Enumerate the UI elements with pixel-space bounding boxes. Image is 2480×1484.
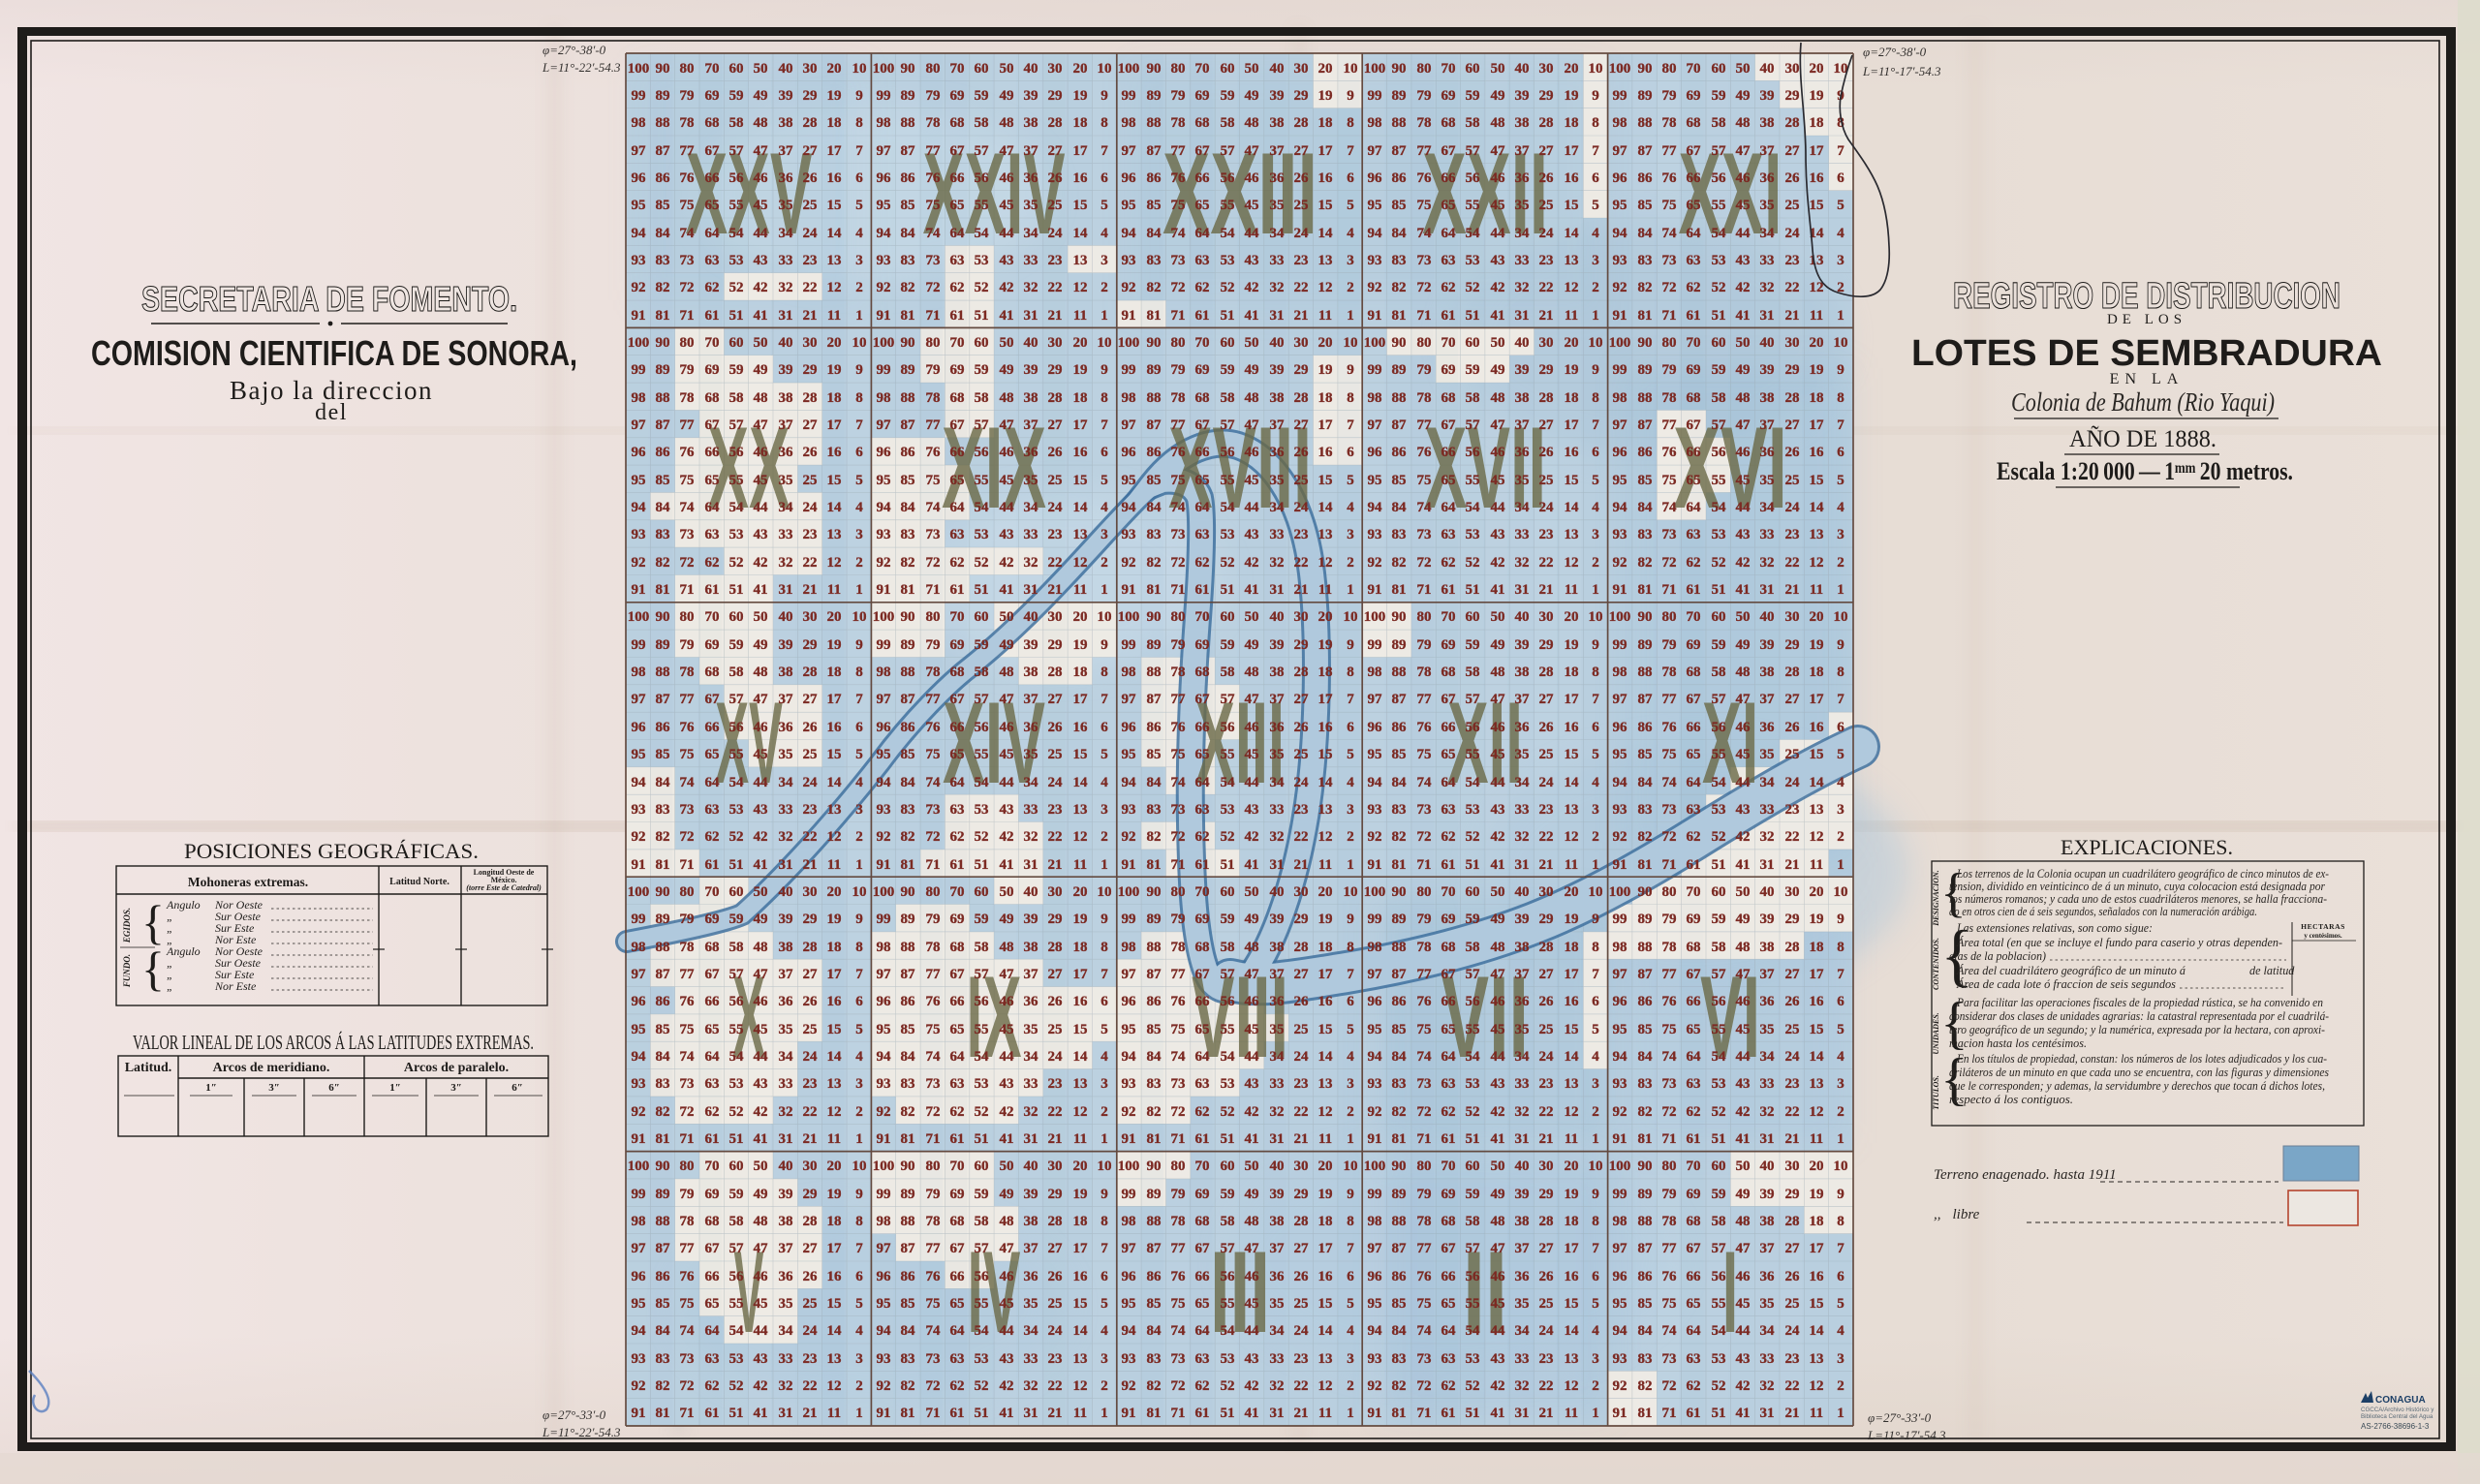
svg-text:86: 86	[1638, 170, 1654, 186]
svg-text:74: 74	[680, 1049, 696, 1065]
svg-text:Escala 1:20 000 — 1ᵐᵐ 20 metro: Escala 1:20 000 — 1ᵐᵐ 20 metros.	[1997, 457, 2293, 485]
svg-text:52: 52	[1712, 1104, 1726, 1120]
svg-text:49: 49	[1245, 88, 1259, 104]
svg-text:100: 100	[628, 1159, 650, 1174]
svg-text:8: 8	[1837, 390, 1844, 406]
svg-text:84: 84	[1392, 226, 1408, 241]
svg-text:69: 69	[950, 1187, 965, 1202]
svg-text:63: 63	[1195, 1351, 1210, 1367]
svg-text:13: 13	[1073, 253, 1088, 268]
svg-text:14: 14	[1810, 1049, 1825, 1065]
svg-text:73: 73	[926, 1076, 941, 1092]
svg-text:3: 3	[1837, 1076, 1844, 1092]
svg-text:15: 15	[1318, 747, 1333, 762]
svg-text:64: 64	[705, 1049, 721, 1065]
svg-text:67: 67	[1195, 143, 1211, 159]
svg-text:EGIDOS.: EGIDOS.	[122, 908, 132, 943]
svg-text:L=11°-22′-54.3: L=11°-22′-54.3	[542, 60, 621, 75]
svg-text:22: 22	[1294, 1378, 1309, 1394]
svg-text:23: 23	[1294, 527, 1309, 542]
svg-text:61: 61	[950, 857, 965, 873]
svg-text:87: 87	[901, 692, 916, 707]
svg-text:62: 62	[1687, 829, 1701, 845]
svg-text:37: 37	[1024, 967, 1039, 982]
svg-text:77: 77	[1417, 417, 1433, 433]
svg-text:94: 94	[1613, 226, 1628, 241]
svg-text:9: 9	[855, 1187, 863, 1202]
svg-text:30: 30	[1539, 335, 1554, 351]
svg-text:96: 96	[1613, 1269, 1628, 1284]
svg-text:13: 13	[827, 802, 842, 818]
svg-text:6: 6	[855, 720, 863, 735]
svg-text:90: 90	[1392, 1159, 1407, 1174]
svg-text:32: 32	[1515, 1104, 1530, 1120]
svg-text:17: 17	[1565, 967, 1580, 982]
svg-text:11: 11	[827, 308, 841, 324]
svg-text:17: 17	[827, 417, 843, 433]
svg-text:54: 54	[1221, 1049, 1236, 1065]
svg-text:56: 56	[729, 720, 745, 735]
svg-text:26: 26	[803, 994, 819, 1009]
svg-text:64: 64	[1687, 775, 1702, 790]
svg-text:18: 18	[1318, 665, 1333, 680]
svg-text:63: 63	[950, 802, 965, 818]
svg-text:89: 89	[1147, 362, 1162, 378]
svg-text:21: 21	[1785, 308, 1800, 324]
svg-text:55: 55	[975, 1022, 989, 1037]
svg-text:83: 83	[1638, 527, 1653, 542]
svg-text:,, libre: ,, libre	[1934, 1207, 1980, 1222]
svg-text:2: 2	[1347, 1104, 1354, 1120]
svg-text:37: 37	[1760, 143, 1776, 159]
svg-text:73: 73	[926, 527, 941, 542]
svg-text:36: 36	[1760, 170, 1776, 186]
svg-text:62: 62	[950, 1378, 965, 1394]
svg-text:36: 36	[779, 170, 794, 186]
svg-text:93: 93	[1613, 1076, 1627, 1092]
svg-text:25: 25	[1294, 747, 1309, 762]
svg-text:76: 76	[926, 445, 942, 460]
svg-text:80: 80	[1417, 61, 1432, 77]
svg-text:34: 34	[1024, 775, 1039, 790]
svg-text:34: 34	[1024, 500, 1039, 515]
svg-text:8: 8	[1592, 665, 1599, 680]
svg-text:62: 62	[1195, 829, 1210, 845]
svg-text:95: 95	[1613, 198, 1627, 213]
svg-text:67: 67	[705, 143, 721, 159]
svg-text:51: 51	[1712, 308, 1726, 324]
svg-text:55: 55	[1712, 1022, 1726, 1037]
svg-text:33: 33	[1760, 1076, 1775, 1092]
svg-text:64: 64	[1687, 226, 1702, 241]
svg-text:42: 42	[1491, 1104, 1505, 1120]
svg-text:20: 20	[1565, 884, 1579, 900]
svg-text:86: 86	[1147, 1269, 1162, 1284]
svg-text:52: 52	[729, 1104, 744, 1120]
svg-text:61: 61	[1687, 857, 1701, 873]
svg-text:39: 39	[1024, 88, 1038, 104]
svg-text:81: 81	[1392, 1131, 1407, 1147]
svg-text:considerar dos clases de unida: considerar dos clases de unidades agrari…	[1949, 1009, 2329, 1023]
svg-text:32: 32	[1760, 1378, 1775, 1394]
svg-text:15: 15	[1318, 198, 1333, 213]
svg-text:65: 65	[950, 198, 965, 213]
svg-text:φ=27°-33′-0: φ=27°-33′-0	[1868, 1410, 1932, 1425]
svg-text:81: 81	[656, 308, 670, 324]
svg-text:97: 97	[632, 692, 647, 707]
svg-text:83: 83	[1638, 253, 1653, 268]
svg-text:51: 51	[1221, 308, 1235, 324]
svg-text:62: 62	[705, 280, 720, 295]
svg-text:61: 61	[950, 582, 965, 598]
svg-text:77: 77	[1171, 417, 1187, 433]
svg-text:39: 39	[1515, 1187, 1530, 1202]
svg-text:32: 32	[1760, 829, 1775, 845]
svg-text:41: 41	[1245, 1406, 1259, 1421]
svg-text:9: 9	[1347, 637, 1354, 653]
svg-text:43: 43	[1491, 527, 1505, 542]
svg-text:54: 54	[729, 1049, 745, 1065]
svg-text:7: 7	[855, 143, 863, 159]
svg-text:21: 21	[1294, 1406, 1309, 1421]
svg-text:70: 70	[1687, 61, 1701, 77]
svg-text:26: 26	[1048, 994, 1064, 1009]
svg-text:30: 30	[1539, 884, 1554, 900]
svg-text:97: 97	[1122, 692, 1137, 707]
svg-text:35: 35	[1760, 1022, 1775, 1037]
svg-text:60: 60	[1221, 884, 1235, 900]
svg-text:2: 2	[1100, 1378, 1108, 1394]
svg-text:45: 45	[1245, 473, 1259, 488]
svg-text:66: 66	[1441, 170, 1457, 186]
svg-text:19: 19	[1073, 912, 1088, 927]
svg-text:9: 9	[1837, 362, 1844, 378]
svg-text:78: 78	[1662, 665, 1677, 680]
svg-text:87: 87	[901, 967, 916, 982]
svg-text:42: 42	[1000, 280, 1014, 295]
svg-text:13: 13	[1073, 802, 1088, 818]
svg-text:92: 92	[877, 1378, 891, 1394]
svg-text:6: 6	[1347, 720, 1354, 735]
svg-text:100: 100	[628, 884, 650, 900]
svg-text:70: 70	[1687, 609, 1701, 625]
svg-text:19: 19	[827, 1187, 842, 1202]
svg-text:97: 97	[1613, 1241, 1628, 1256]
svg-text:40: 40	[1760, 335, 1775, 351]
svg-text:91: 91	[877, 308, 891, 324]
svg-text:12: 12	[1073, 829, 1088, 845]
svg-text:80: 80	[680, 335, 695, 351]
svg-text:44: 44	[1000, 500, 1015, 515]
svg-text:36: 36	[1760, 994, 1776, 1009]
svg-text:51: 51	[1712, 1406, 1726, 1421]
svg-text:28: 28	[1048, 390, 1063, 406]
svg-text:47: 47	[754, 692, 769, 707]
svg-text:25: 25	[1048, 747, 1063, 762]
svg-text:17: 17	[1318, 417, 1334, 433]
svg-text:6: 6	[1100, 170, 1108, 186]
svg-text:32: 32	[779, 1104, 793, 1120]
svg-text:15: 15	[1565, 1296, 1579, 1312]
svg-text:37: 37	[1024, 143, 1039, 159]
svg-text:32: 32	[1760, 280, 1775, 295]
svg-text:19: 19	[1565, 637, 1579, 653]
svg-text:36: 36	[1515, 445, 1531, 460]
svg-text:70: 70	[1441, 1159, 1456, 1174]
svg-text:24: 24	[1048, 1049, 1064, 1065]
svg-text:67: 67	[950, 143, 966, 159]
svg-text:56: 56	[1221, 994, 1236, 1009]
svg-text:9: 9	[1347, 1187, 1354, 1202]
svg-text:36: 36	[1024, 170, 1039, 186]
svg-text:43: 43	[1736, 527, 1751, 542]
svg-text:41: 41	[1245, 582, 1259, 598]
svg-text:75: 75	[926, 198, 941, 213]
svg-text:8: 8	[1100, 1214, 1108, 1229]
svg-text:54: 54	[975, 226, 990, 241]
svg-text:23: 23	[1785, 527, 1800, 542]
svg-text:28: 28	[1785, 115, 1800, 131]
svg-text:5: 5	[1100, 473, 1108, 488]
svg-text:67: 67	[950, 1241, 966, 1256]
svg-text:44: 44	[1245, 1323, 1260, 1339]
svg-text:21: 21	[1785, 857, 1800, 873]
svg-text:28: 28	[1785, 1214, 1800, 1229]
svg-text:69: 69	[1687, 637, 1701, 653]
svg-text:23: 23	[1539, 253, 1554, 268]
svg-text:28: 28	[1048, 940, 1063, 955]
svg-text:45: 45	[1000, 747, 1014, 762]
svg-text:Para facilitar las operaciones: Para facilitar las operaciones fiscales …	[1956, 996, 2323, 1009]
svg-text:43: 43	[1245, 1076, 1259, 1092]
svg-text:46: 46	[1000, 1269, 1015, 1284]
svg-text:99: 99	[1368, 912, 1382, 927]
svg-text:36: 36	[1515, 170, 1531, 186]
svg-text:16: 16	[827, 1269, 843, 1284]
svg-text:89: 89	[1392, 912, 1407, 927]
svg-text:3: 3	[1592, 253, 1599, 268]
svg-text:18: 18	[1810, 115, 1824, 131]
svg-text:60: 60	[1712, 1159, 1726, 1174]
svg-text:83: 83	[1392, 1076, 1407, 1092]
svg-text:11: 11	[1565, 582, 1578, 598]
svg-text:90: 90	[1392, 61, 1407, 77]
svg-text:3: 3	[1347, 253, 1354, 268]
svg-text:88: 88	[1638, 390, 1653, 406]
svg-text:52: 52	[975, 555, 989, 571]
svg-text:49: 49	[1245, 912, 1259, 927]
svg-text:84: 84	[1392, 1323, 1408, 1339]
svg-text:36: 36	[1515, 1269, 1531, 1284]
svg-text:56: 56	[1712, 720, 1727, 735]
svg-text:55: 55	[975, 473, 989, 488]
svg-text:19: 19	[827, 912, 842, 927]
svg-text:1: 1	[1347, 1131, 1354, 1147]
svg-text:57: 57	[1221, 143, 1236, 159]
svg-text:64: 64	[1687, 500, 1702, 515]
svg-text:59: 59	[1466, 1187, 1480, 1202]
svg-text:74: 74	[1171, 500, 1187, 515]
svg-text:72: 72	[1417, 1378, 1432, 1394]
svg-text:Colonia de Bahum (Rio Yaqui): Colonia de Bahum (Rio Yaqui)	[2011, 387, 2275, 417]
svg-text:92: 92	[632, 1378, 646, 1394]
svg-text:44: 44	[1491, 775, 1506, 790]
svg-text:27: 27	[1785, 692, 1801, 707]
svg-text:13: 13	[827, 1351, 842, 1367]
svg-text:88: 88	[656, 940, 670, 955]
svg-text:86: 86	[1638, 1269, 1654, 1284]
svg-text:99: 99	[632, 88, 646, 104]
svg-text:63: 63	[1687, 1351, 1701, 1367]
svg-text:29: 29	[1539, 88, 1554, 104]
svg-text:22: 22	[803, 280, 818, 295]
svg-text:77: 77	[1662, 417, 1678, 433]
svg-text:81: 81	[656, 1131, 670, 1147]
svg-text:81: 81	[1638, 1406, 1653, 1421]
svg-text:19: 19	[827, 637, 842, 653]
svg-text:54: 54	[975, 500, 990, 515]
svg-text:48: 48	[1000, 940, 1014, 955]
svg-text:37: 37	[779, 143, 794, 159]
svg-text:97: 97	[1368, 143, 1383, 159]
svg-text:70: 70	[1687, 335, 1701, 351]
svg-text:68: 68	[1687, 940, 1701, 955]
svg-text:49: 49	[1000, 88, 1014, 104]
svg-text:96: 96	[1122, 170, 1137, 186]
svg-text:64: 64	[950, 1049, 966, 1065]
svg-text:26: 26	[803, 445, 819, 460]
svg-text:71: 71	[1417, 1406, 1432, 1421]
svg-text:62: 62	[1441, 1104, 1456, 1120]
svg-text:60: 60	[975, 609, 989, 625]
svg-text:69: 69	[950, 362, 965, 378]
svg-text:61: 61	[705, 857, 720, 873]
svg-text:52: 52	[975, 1378, 989, 1394]
svg-text:87: 87	[1638, 692, 1654, 707]
svg-text:14: 14	[827, 226, 843, 241]
svg-text:16: 16	[1318, 170, 1334, 186]
svg-text:82: 82	[656, 280, 670, 295]
svg-text:53: 53	[729, 802, 744, 818]
svg-text:38: 38	[1515, 390, 1530, 406]
svg-text:16: 16	[1565, 445, 1580, 460]
svg-text:43: 43	[1491, 1076, 1505, 1092]
svg-text:67: 67	[1195, 417, 1211, 433]
svg-text:1: 1	[1837, 582, 1844, 598]
svg-text:9: 9	[1837, 912, 1844, 927]
svg-text:76: 76	[680, 720, 696, 735]
svg-text:35: 35	[779, 198, 793, 213]
svg-text:62: 62	[1195, 1104, 1210, 1120]
svg-text:23: 23	[1294, 1076, 1309, 1092]
svg-text:45: 45	[1000, 198, 1014, 213]
svg-text:98: 98	[632, 940, 646, 955]
svg-text:22: 22	[803, 829, 818, 845]
svg-text:94: 94	[1122, 1323, 1137, 1339]
svg-text:76: 76	[1171, 994, 1187, 1009]
svg-text:38: 38	[1760, 390, 1775, 406]
svg-text:46: 46	[1491, 170, 1506, 186]
svg-text:44: 44	[1491, 1323, 1506, 1339]
svg-text:58: 58	[1712, 390, 1726, 406]
svg-text:71: 71	[1662, 857, 1677, 873]
svg-text:7: 7	[1347, 692, 1354, 707]
svg-text:13: 13	[1318, 1351, 1333, 1367]
svg-text:75: 75	[926, 1022, 941, 1037]
svg-text:77: 77	[1662, 143, 1678, 159]
svg-text:75: 75	[1417, 1022, 1432, 1037]
svg-text:28: 28	[803, 940, 818, 955]
svg-text:45: 45	[1245, 198, 1259, 213]
svg-text:24: 24	[803, 1049, 819, 1065]
svg-text:35: 35	[1270, 1022, 1285, 1037]
svg-text:84: 84	[1638, 1323, 1654, 1339]
svg-text:8: 8	[1100, 115, 1108, 131]
svg-text:85: 85	[901, 747, 915, 762]
svg-text:26: 26	[1539, 994, 1555, 1009]
svg-text:1: 1	[1347, 582, 1354, 598]
svg-text:49: 49	[1736, 88, 1751, 104]
svg-text:86: 86	[1147, 170, 1162, 186]
svg-text:99: 99	[1368, 88, 1382, 104]
svg-text:4: 4	[1100, 1049, 1108, 1065]
svg-text:11: 11	[827, 1131, 841, 1147]
svg-text:24: 24	[1294, 1323, 1310, 1339]
svg-text:49: 49	[1491, 637, 1505, 653]
svg-text:36: 36	[1760, 720, 1776, 735]
svg-text:78: 78	[926, 1214, 941, 1229]
svg-text:93: 93	[1122, 527, 1136, 542]
svg-text:60: 60	[1712, 335, 1726, 351]
svg-text:18: 18	[827, 940, 842, 955]
svg-text:12: 12	[1073, 1378, 1088, 1394]
svg-text:60: 60	[975, 1159, 989, 1174]
svg-text:63: 63	[1195, 253, 1210, 268]
svg-text:34: 34	[1760, 500, 1776, 515]
svg-text:37: 37	[1515, 1241, 1531, 1256]
svg-text:1: 1	[1100, 857, 1108, 873]
svg-text:Área total (en que se incluye: Área total (en que se incluye el fundo p…	[1956, 936, 2282, 949]
svg-text:52: 52	[1466, 1378, 1480, 1394]
svg-text:74: 74	[680, 226, 696, 241]
svg-text:23: 23	[1785, 1351, 1800, 1367]
svg-text:19: 19	[1318, 88, 1333, 104]
svg-text:21: 21	[1294, 582, 1309, 598]
svg-text:52: 52	[1466, 1104, 1480, 1120]
svg-text:18: 18	[1810, 1214, 1824, 1229]
svg-text:47: 47	[1736, 967, 1751, 982]
svg-text:48: 48	[754, 115, 768, 131]
svg-text:35: 35	[1515, 473, 1530, 488]
svg-text:48: 48	[1000, 665, 1014, 680]
svg-text:64: 64	[1195, 226, 1211, 241]
svg-text:70: 70	[1687, 1159, 1701, 1174]
svg-text:27: 27	[1294, 1241, 1310, 1256]
svg-text:57: 57	[729, 1241, 745, 1256]
svg-text:17: 17	[827, 692, 843, 707]
svg-text:70: 70	[1441, 884, 1456, 900]
svg-text:63: 63	[1687, 1076, 1701, 1092]
svg-text:69: 69	[1687, 912, 1701, 927]
svg-text:16: 16	[1565, 994, 1580, 1009]
svg-text:78: 78	[680, 665, 695, 680]
svg-text:6: 6	[1347, 170, 1354, 186]
svg-text:88: 88	[656, 115, 670, 131]
svg-text:88: 88	[1392, 1214, 1407, 1229]
svg-text:4: 4	[1347, 500, 1354, 515]
svg-text:85: 85	[1392, 198, 1407, 213]
svg-text:52: 52	[1221, 1378, 1235, 1394]
